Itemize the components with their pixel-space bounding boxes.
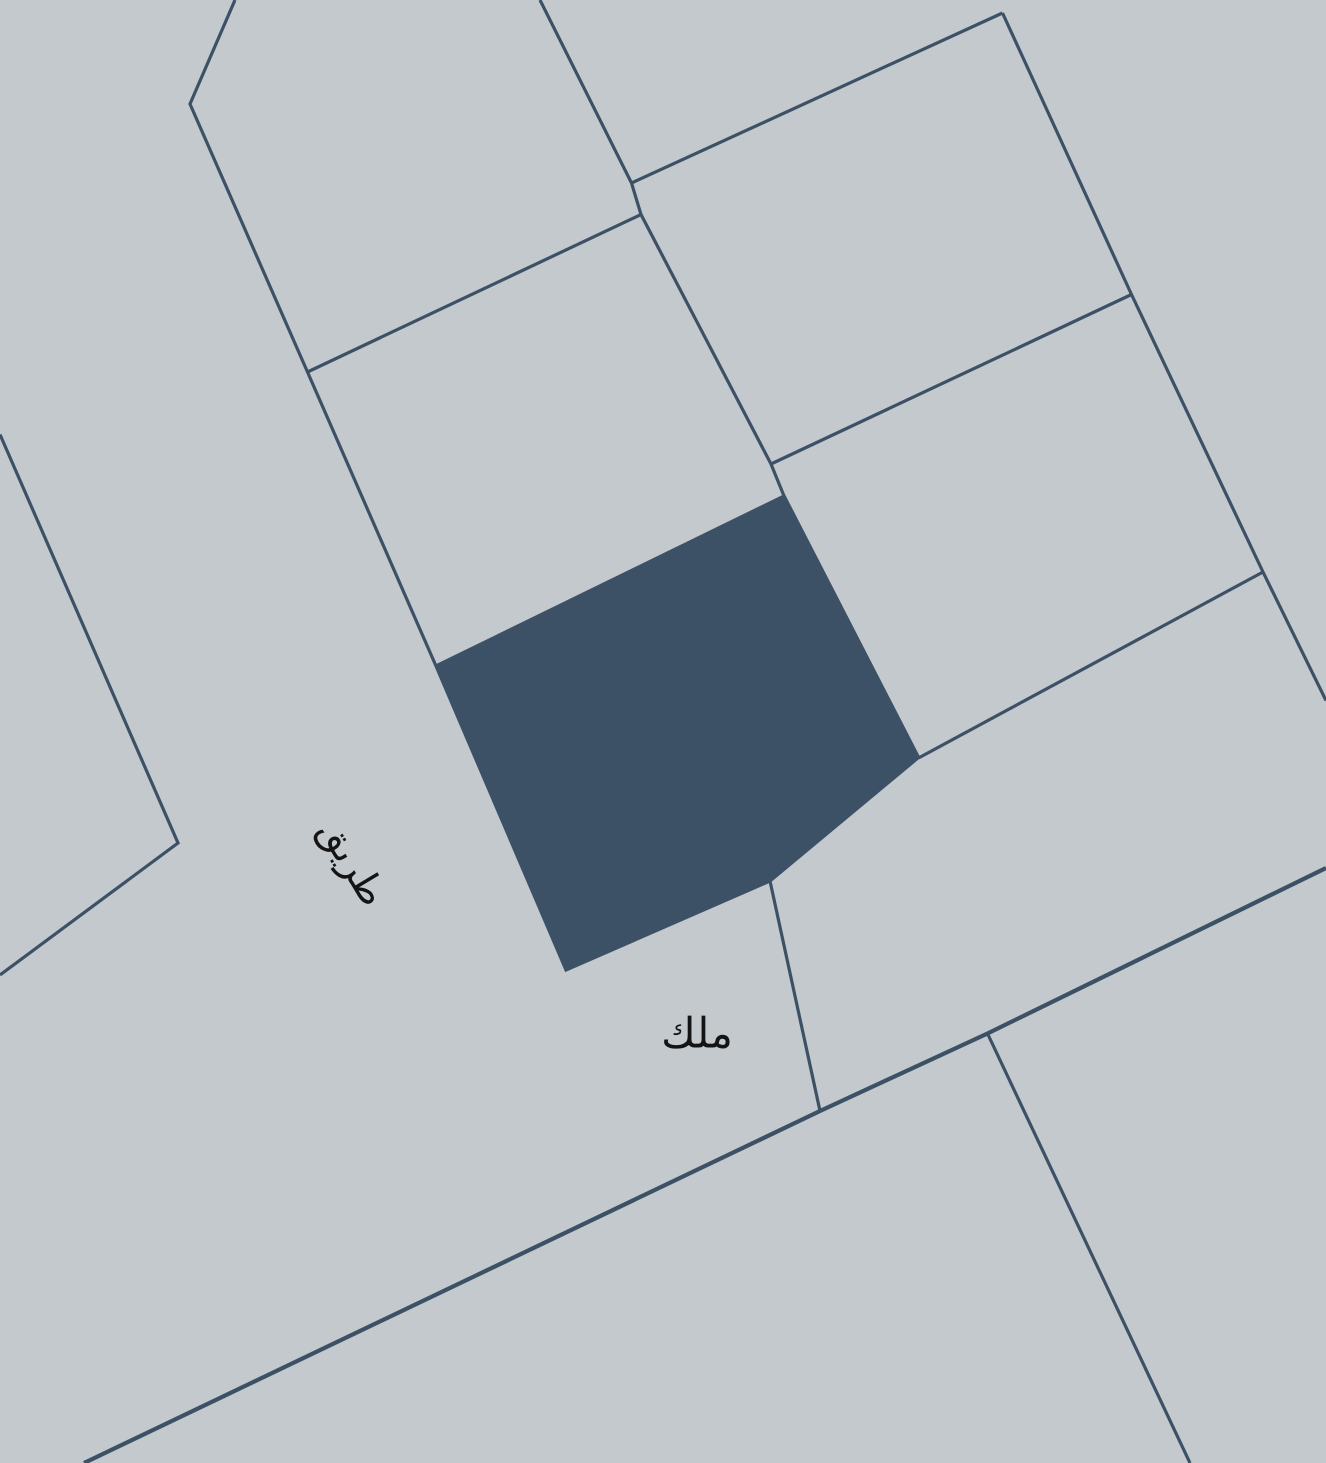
svg-text:ملك: ملك (661, 1010, 733, 1057)
